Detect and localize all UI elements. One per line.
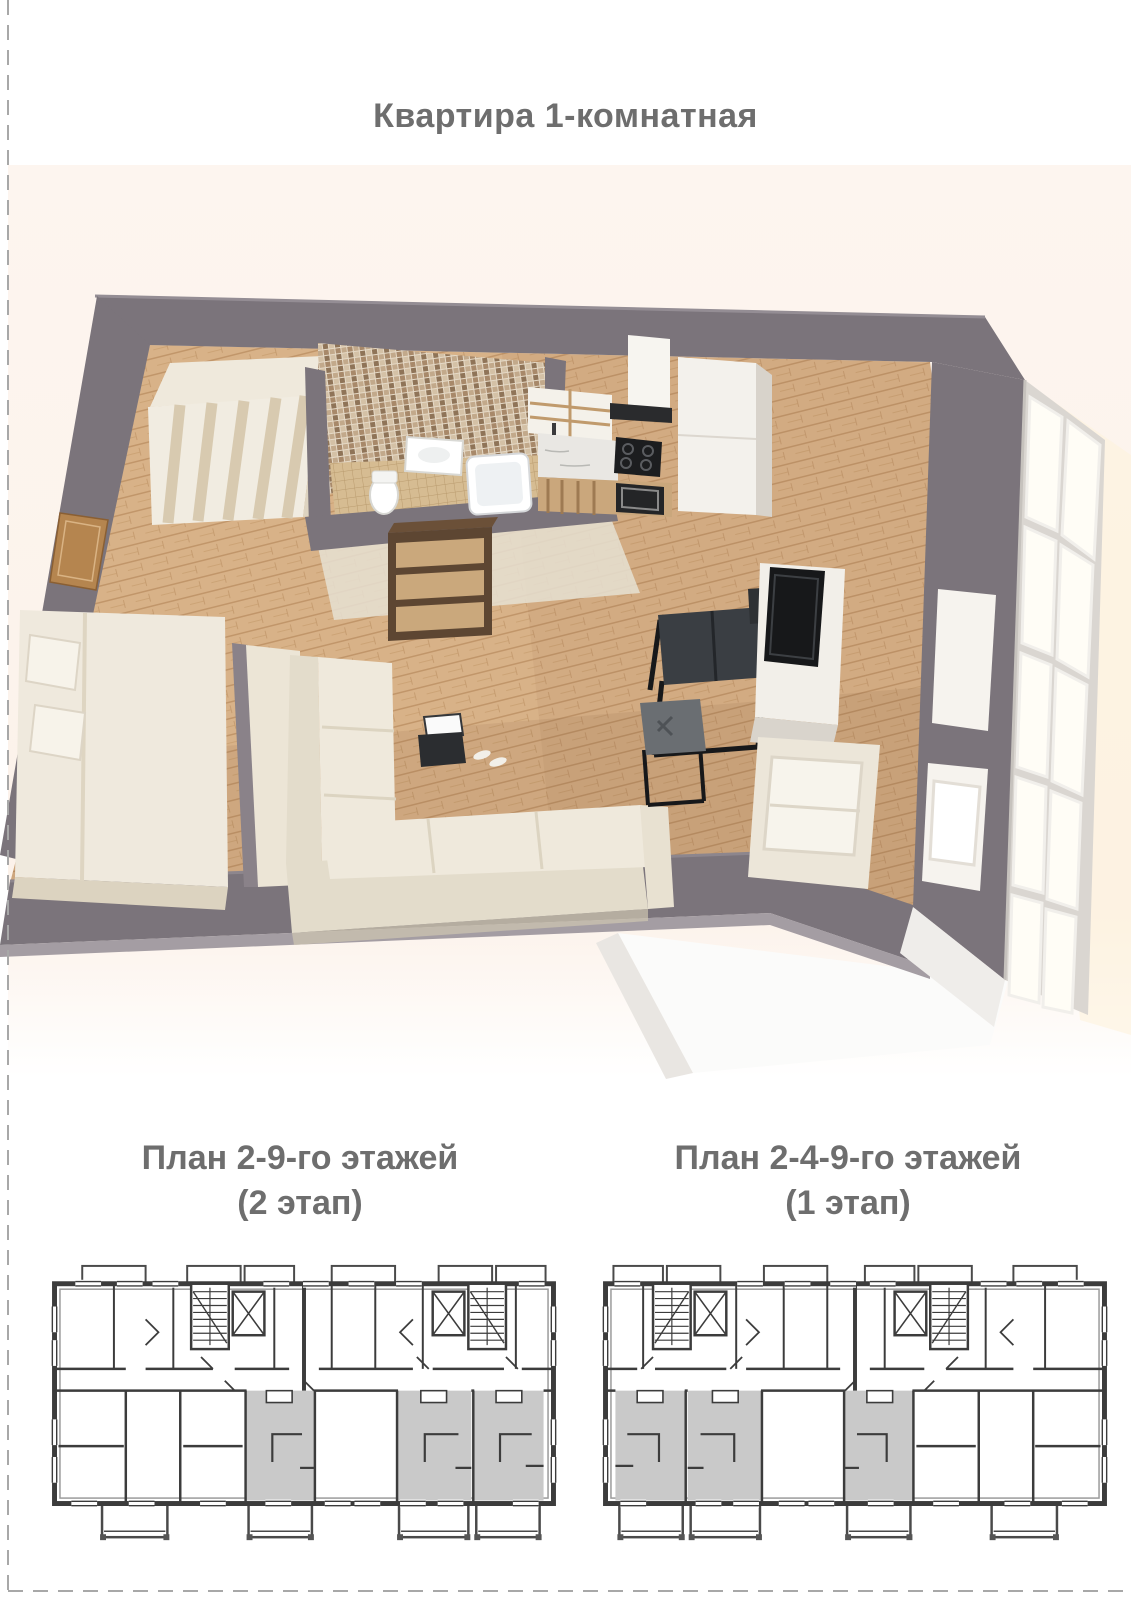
plan-right-label-line1: План 2-4-9-го этажей xyxy=(588,1136,1108,1181)
brochure-page: Квартира 1-комнатная xyxy=(0,0,1131,1600)
armchair xyxy=(748,737,880,889)
oven xyxy=(616,483,664,515)
tv-unit xyxy=(750,563,845,750)
kitchen-counter xyxy=(538,433,618,481)
plan-right-label-line2: (1 этап) xyxy=(588,1181,1108,1226)
floor-plan-left xyxy=(46,1258,562,1555)
toilet xyxy=(370,471,398,514)
sink-vanity xyxy=(405,437,463,475)
bed xyxy=(12,610,228,910)
hall-dresser xyxy=(388,517,498,641)
tall-cabinet xyxy=(678,357,772,517)
gas-stove xyxy=(614,437,662,477)
plan-left-label-line1: План 2-9-го этажей xyxy=(40,1136,560,1181)
plan-left-label: План 2-9-го этажей (2 этап) xyxy=(40,1136,560,1226)
plan-left-label-line2: (2 этап) xyxy=(40,1181,560,1226)
render-scene xyxy=(0,165,1131,1105)
page-title: Квартира 1-комнатная xyxy=(0,97,1131,136)
cooker-hood xyxy=(628,335,670,417)
bathtub xyxy=(466,453,532,515)
apartment-3d-render xyxy=(0,165,1131,1105)
floor-plan-right xyxy=(597,1258,1113,1555)
plan-right-label: План 2-4-9-го этажей (1 этап) xyxy=(588,1136,1108,1226)
